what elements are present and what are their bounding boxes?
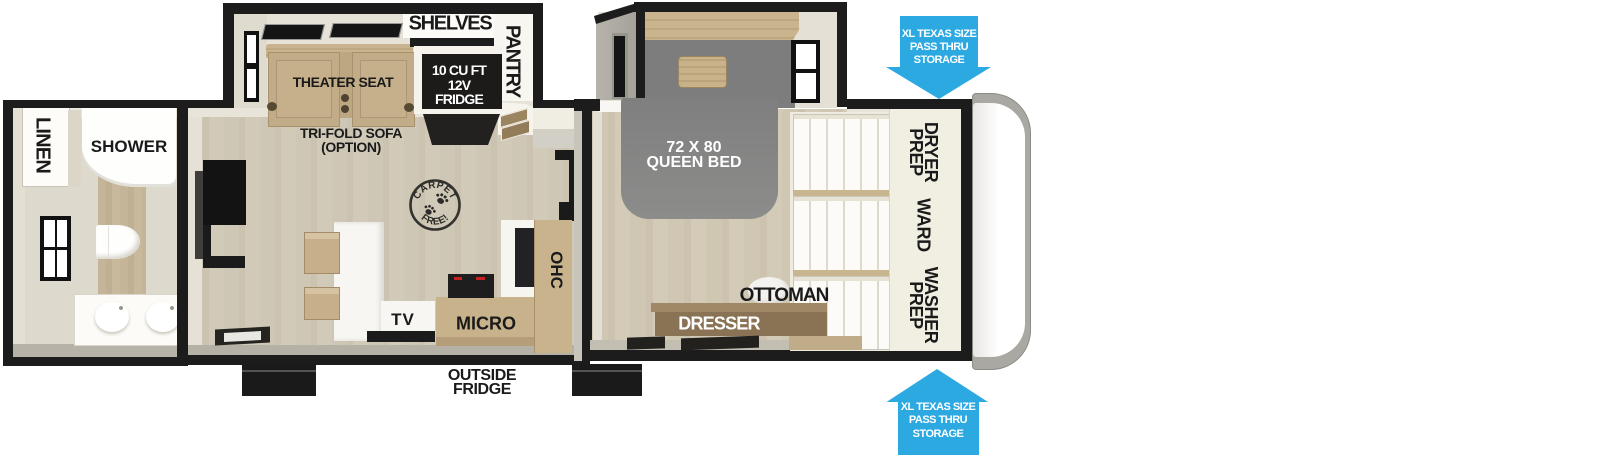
svg-text:CARPET: CARPET [411, 180, 458, 201]
